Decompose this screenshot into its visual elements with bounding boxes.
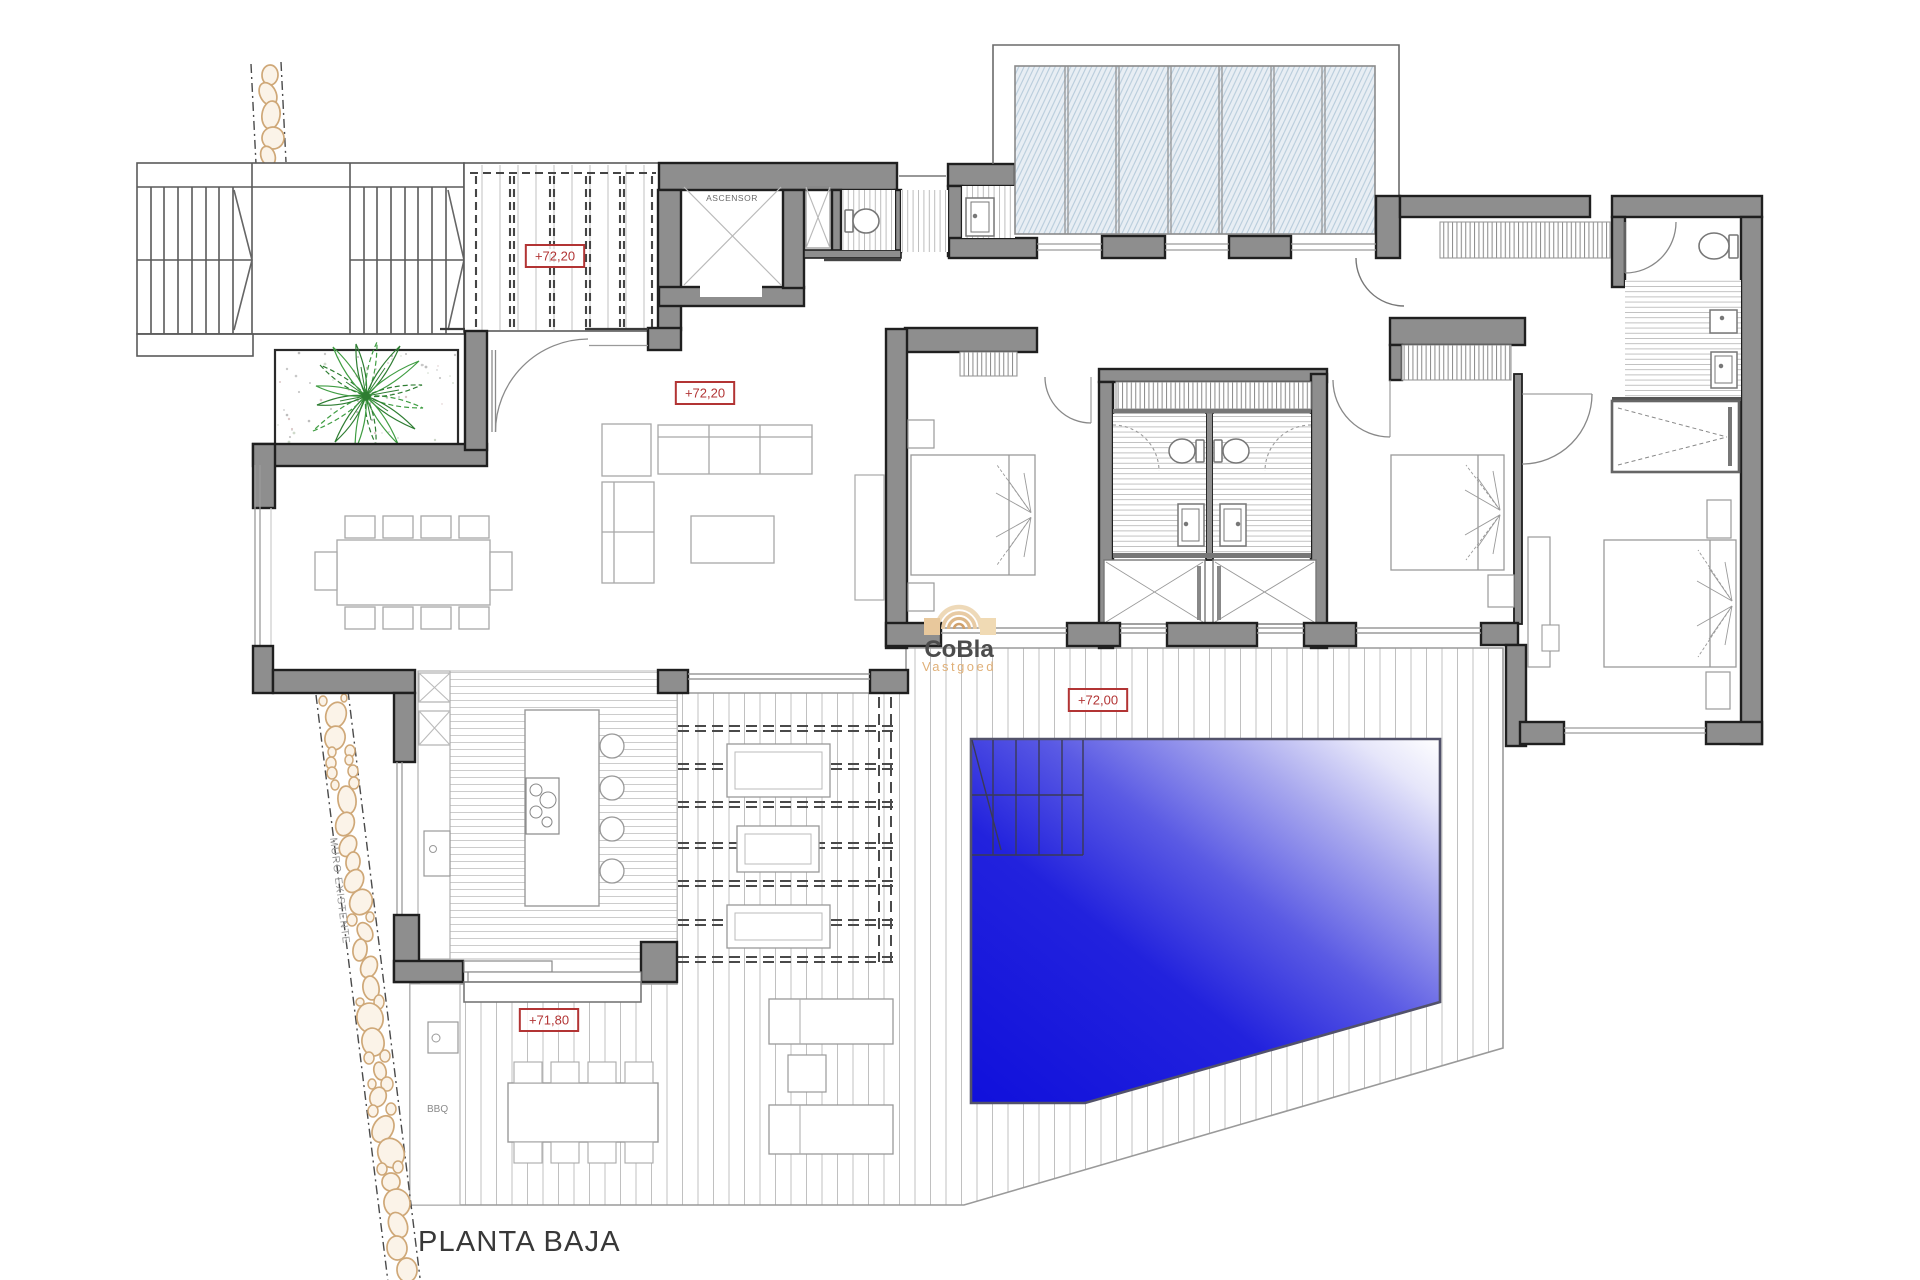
svg-text:+72,20: +72,20 — [535, 249, 575, 264]
svg-text:PLANTA BAJA: PLANTA BAJA — [418, 1226, 621, 1258]
svg-text:+71,80: +71,80 — [529, 1013, 569, 1028]
svg-text:ASCENSOR: ASCENSOR — [706, 193, 758, 203]
svg-text:+72,00: +72,00 — [1078, 693, 1118, 708]
svg-text:BBQ: BBQ — [427, 1104, 448, 1115]
svg-text:+72,20: +72,20 — [685, 386, 725, 401]
svg-text:Vastgoed: Vastgoed — [922, 659, 996, 674]
